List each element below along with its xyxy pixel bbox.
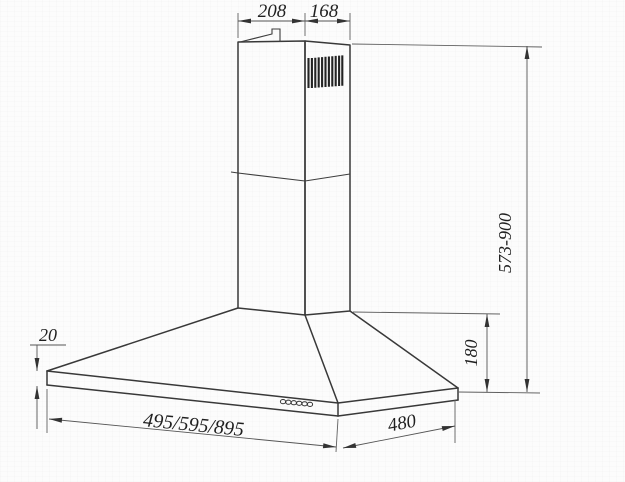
chimney-top-depth-label: 168 bbox=[310, 1, 339, 22]
hood-width-options-label: 495/595/895 bbox=[142, 409, 245, 441]
arrowhead bbox=[485, 314, 490, 327]
canopy-bottom-front-edge bbox=[47, 371, 338, 403]
canopy-front-right-slope bbox=[305, 315, 338, 403]
dimension-overall-height: 573-900 bbox=[352, 44, 542, 393]
arrowhead bbox=[525, 379, 530, 392]
hood-depth-label: 480 bbox=[386, 410, 418, 436]
overall-height-range-label: 573-900 bbox=[495, 213, 515, 273]
dimension-rim-thickness: 20 bbox=[30, 325, 66, 429]
control-button bbox=[307, 402, 312, 406]
arrowhead bbox=[292, 19, 305, 24]
canopy-left-slope bbox=[47, 308, 238, 371]
control-button bbox=[291, 401, 296, 405]
control-buttons bbox=[280, 400, 312, 407]
chimney-front-face bbox=[238, 41, 305, 315]
dimension-canopy-height: 180 bbox=[353, 312, 500, 392]
chimney-telescopic-seam bbox=[231, 172, 350, 181]
arrowhead bbox=[238, 19, 251, 24]
canopy-back-right-slope bbox=[350, 311, 458, 388]
arrowhead bbox=[337, 19, 350, 24]
arrowhead bbox=[442, 426, 455, 431]
arrowhead bbox=[485, 379, 490, 392]
rim-thickness-label: 20 bbox=[39, 325, 57, 345]
arrowhead bbox=[35, 358, 40, 371]
arrowhead bbox=[323, 443, 336, 448]
range-hood-drawing: 208 168 573-900 180 20 bbox=[0, 0, 625, 482]
extension-line bbox=[458, 392, 540, 393]
chimney-duct bbox=[231, 29, 350, 315]
canopy-bottom-right-edge bbox=[338, 388, 458, 403]
control-button bbox=[297, 401, 302, 405]
arrowhead bbox=[343, 443, 356, 448]
vent-grille bbox=[309, 55, 343, 88]
chimney-top-width-label: 208 bbox=[258, 1, 287, 22]
control-button bbox=[302, 402, 307, 406]
extension-line bbox=[352, 44, 542, 47]
arrowhead bbox=[49, 418, 62, 423]
extension-line bbox=[336, 419, 338, 452]
arrowhead bbox=[525, 46, 530, 59]
dimension-top: 208 168 bbox=[238, 1, 350, 40]
control-button bbox=[280, 400, 285, 404]
control-button bbox=[286, 400, 291, 404]
technical-drawing-canvas: 208 168 573-900 180 20 bbox=[0, 0, 625, 482]
canopy bbox=[47, 308, 458, 403]
canopy-height-label: 180 bbox=[461, 340, 481, 367]
arrowhead bbox=[35, 386, 40, 399]
extension-line bbox=[353, 312, 500, 314]
chimney-top-flange bbox=[240, 29, 280, 42]
